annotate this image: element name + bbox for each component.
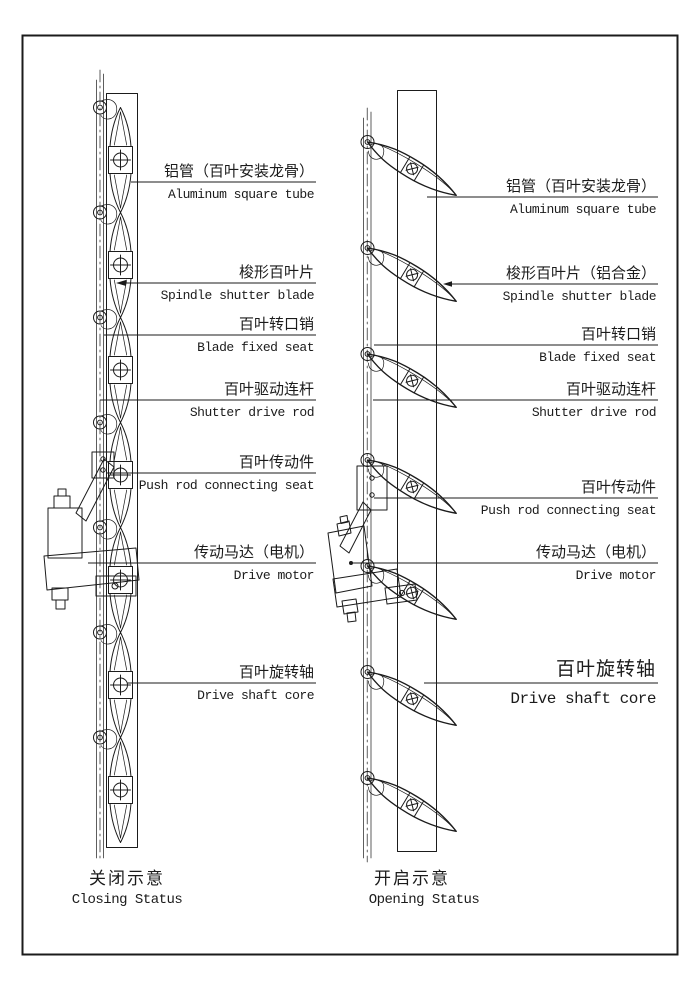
labels-opening: 铝管（百叶安装龙骨） Aluminum square tube 梭形百叶片（铝合… [349, 178, 658, 708]
label-zh: 百叶驱动连杆 [224, 381, 314, 399]
label-en: Drive shaft core [510, 690, 656, 708]
label-drive-shaft-core: 百叶旋转轴 Drive shaft core [424, 658, 658, 708]
label-blade-fixed-seat: 百叶转口销 Blade fixed seat [374, 326, 658, 365]
label-aluminum-square-tube: 铝管（百叶安装龙骨） Aluminum square tube [131, 163, 316, 202]
label-en: Shutter drive rod [532, 405, 656, 420]
labels-closing: 铝管（百叶安装龙骨） Aluminum square tube 梭形百叶片 Sp… [88, 163, 316, 703]
label-spindle-shutter-blade: 梭形百叶片（铝合金） Spindle shutter blade [443, 264, 658, 304]
label-en: Spindle shutter blade [161, 288, 314, 303]
closing-diagram [44, 70, 139, 862]
label-en: Push rod connecting seat [139, 478, 314, 493]
caption-en: Closing Status [72, 892, 183, 908]
label-shutter-drive-rod: 百叶驱动连杆 Shutter drive rod [373, 381, 658, 420]
label-zh: 铝管（百叶安装龙骨） [164, 163, 314, 181]
closed-blades [109, 108, 133, 843]
label-zh: 铝管（百叶安装龙骨） [506, 178, 656, 196]
label-en: Drive shaft core [197, 688, 314, 703]
label-en: Blade fixed seat [197, 340, 314, 355]
label-zh: 百叶转口销 [239, 316, 314, 334]
label-en: Aluminum square tube [510, 202, 656, 217]
label-zh: 百叶传动件 [581, 479, 656, 497]
label-drive-motor: 传动马达（电机） Drive motor [88, 544, 316, 583]
label-spindle-shutter-blade: 梭形百叶片 Spindle shutter blade [116, 263, 316, 303]
label-zh: 百叶传动件 [239, 454, 314, 472]
label-drive-shaft-core: 百叶旋转轴 Drive shaft core [127, 664, 316, 703]
label-en: Blade fixed seat [539, 350, 656, 365]
louver-shutter-diagram-page: 铝管（百叶安装龙骨） Aluminum square tube 梭形百叶片 Sp… [0, 0, 700, 991]
caption-opening-status: 开启示意 Opening Status [369, 869, 480, 908]
caption-en: Opening Status [369, 892, 480, 908]
caption-zh: 开启示意 [374, 869, 450, 890]
label-en: Drive motor [576, 568, 656, 583]
label-zh: 传动马达（电机） [536, 544, 656, 562]
label-en: Push rod connecting seat [481, 503, 656, 518]
label-en: Aluminum square tube [168, 187, 314, 202]
label-drive-motor: 传动马达（电机） Drive motor [349, 544, 658, 583]
label-zh: 传动马达（电机） [194, 544, 314, 562]
open-blades [363, 134, 462, 840]
label-zh: 百叶驱动连杆 [566, 381, 656, 399]
diagram-canvas: 铝管（百叶安装龙骨） Aluminum square tube 梭形百叶片 Sp… [0, 0, 700, 991]
label-blade-fixed-seat: 百叶转口销 Blade fixed seat [104, 316, 316, 355]
label-zh: 梭形百叶片（铝合金） [506, 264, 656, 283]
drive-rod [364, 108, 372, 862]
label-en: Shutter drive rod [190, 405, 314, 420]
label-push-rod-connecting-seat: 百叶传动件 Push rod connecting seat [374, 479, 658, 518]
opening-diagram [328, 91, 461, 863]
label-zh: 百叶旋转轴 [556, 658, 656, 681]
label-zh: 百叶转口销 [581, 326, 656, 344]
label-aluminum-square-tube: 铝管（百叶安装龙骨） Aluminum square tube [427, 178, 658, 217]
label-zh: 梭形百叶片 [239, 263, 314, 282]
label-en: Spindle shutter blade [503, 289, 656, 304]
label-zh: 百叶旋转轴 [239, 664, 314, 682]
caption-closing-status: 关闭示意 Closing Status [72, 869, 183, 908]
label-shutter-drive-rod: 百叶驱动连杆 Shutter drive rod [100, 381, 316, 420]
caption-zh: 关闭示意 [89, 869, 165, 890]
label-en: Drive motor [234, 568, 314, 583]
